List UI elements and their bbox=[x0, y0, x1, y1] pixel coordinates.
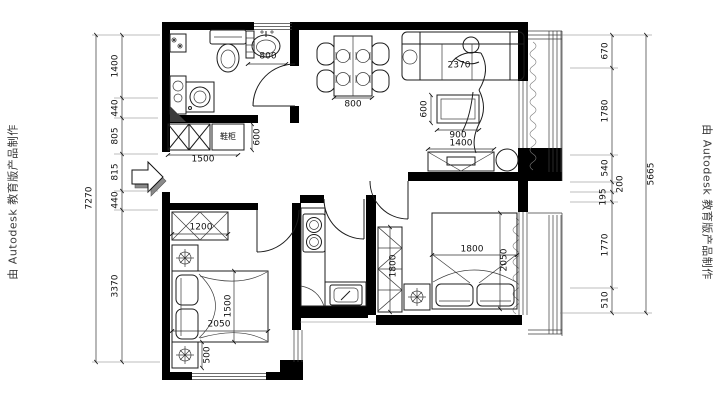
doors bbox=[253, 64, 408, 252]
dim-master-bed-length: 2050 bbox=[501, 249, 510, 272]
entry-cabinet-label: 鞋柜 bbox=[220, 133, 236, 141]
dim-right-4: 195 bbox=[600, 188, 609, 205]
dim-right-5: 1770 bbox=[602, 234, 611, 257]
dim-bedroom2-bed-width: 1500 bbox=[225, 295, 234, 318]
kitchen-sink-icon bbox=[330, 285, 362, 305]
towel-rack-icon bbox=[246, 31, 254, 58]
shower-icon bbox=[170, 34, 186, 52]
nightstand-icon bbox=[404, 284, 430, 310]
plant-icon bbox=[496, 149, 518, 171]
bathroom bbox=[170, 30, 280, 122]
coffee-table-icon bbox=[437, 95, 479, 123]
dim-bedroom2-bed-length: 2050 bbox=[208, 321, 231, 330]
dim-dining-table: 800 bbox=[344, 101, 361, 110]
dim-bedroom2-wardrobe: 1200 bbox=[190, 224, 213, 233]
nightstand-icon bbox=[172, 245, 198, 271]
chair-icon bbox=[371, 70, 389, 92]
autodesk-watermark-left: 由 Autodesk 教育版产品制作 bbox=[8, 124, 19, 279]
dim-right-total: 5665 bbox=[648, 163, 657, 186]
dim-entry-cabinet: 1500 bbox=[192, 156, 215, 165]
corner-cabinet bbox=[301, 286, 324, 306]
dim-sofa: 2370 bbox=[448, 62, 471, 71]
kitchen-door bbox=[324, 199, 364, 239]
dim-left-4: 440 bbox=[112, 191, 121, 208]
dim-left-3: 815 bbox=[112, 163, 121, 180]
dim-left-1: 440 bbox=[112, 99, 121, 116]
master-bedroom bbox=[378, 213, 517, 312]
sofa-icon bbox=[402, 32, 524, 80]
kitchen bbox=[301, 208, 366, 306]
stove-icon bbox=[303, 214, 325, 252]
dining bbox=[317, 36, 389, 96]
toilet-icon bbox=[210, 30, 246, 72]
dim-master-bed-width: 1800 bbox=[461, 246, 484, 255]
dim-tv-cabinet: 1400 bbox=[450, 140, 473, 149]
dim-left-5: 3370 bbox=[112, 275, 121, 298]
dim-right-6: 510 bbox=[602, 291, 611, 308]
dim-basin: 800 bbox=[259, 53, 276, 62]
dining-table-icon bbox=[334, 36, 372, 96]
dim-left-total: 7270 bbox=[86, 187, 95, 210]
chair-icon bbox=[317, 70, 335, 92]
dim-left-2: 805 bbox=[112, 127, 121, 144]
dim-right-1: 1780 bbox=[602, 100, 611, 123]
floor-plan-drawing bbox=[0, 0, 720, 405]
bedroom2 bbox=[172, 212, 268, 368]
washing-machine-icon bbox=[186, 82, 214, 112]
dim-right-3: 200 bbox=[617, 175, 626, 192]
dim-master-wardrobe: 1800 bbox=[390, 255, 399, 278]
dim-coffee-table-depth: 600 bbox=[421, 100, 430, 117]
dim-left-0: 1400 bbox=[112, 55, 121, 78]
dim-right-2: 540 bbox=[602, 159, 611, 176]
floor-plan-canvas: 由 Autodesk 教育版产品制作 由 Autodesk 教育版产品制作 72… bbox=[0, 0, 720, 405]
nightstand-icon bbox=[172, 342, 198, 368]
tv-cabinet-icon bbox=[428, 152, 494, 171]
chair-icon bbox=[317, 43, 335, 65]
bathroom-door bbox=[253, 64, 295, 106]
chair-icon bbox=[371, 43, 389, 65]
dim-entry-cabinet-depth: 600 bbox=[254, 128, 263, 145]
dim-right-0: 670 bbox=[602, 42, 611, 59]
dim-bedroom2-nightstand: 500 bbox=[204, 346, 213, 363]
autodesk-watermark-right: 由 Autodesk 教育版产品制作 bbox=[702, 124, 713, 279]
